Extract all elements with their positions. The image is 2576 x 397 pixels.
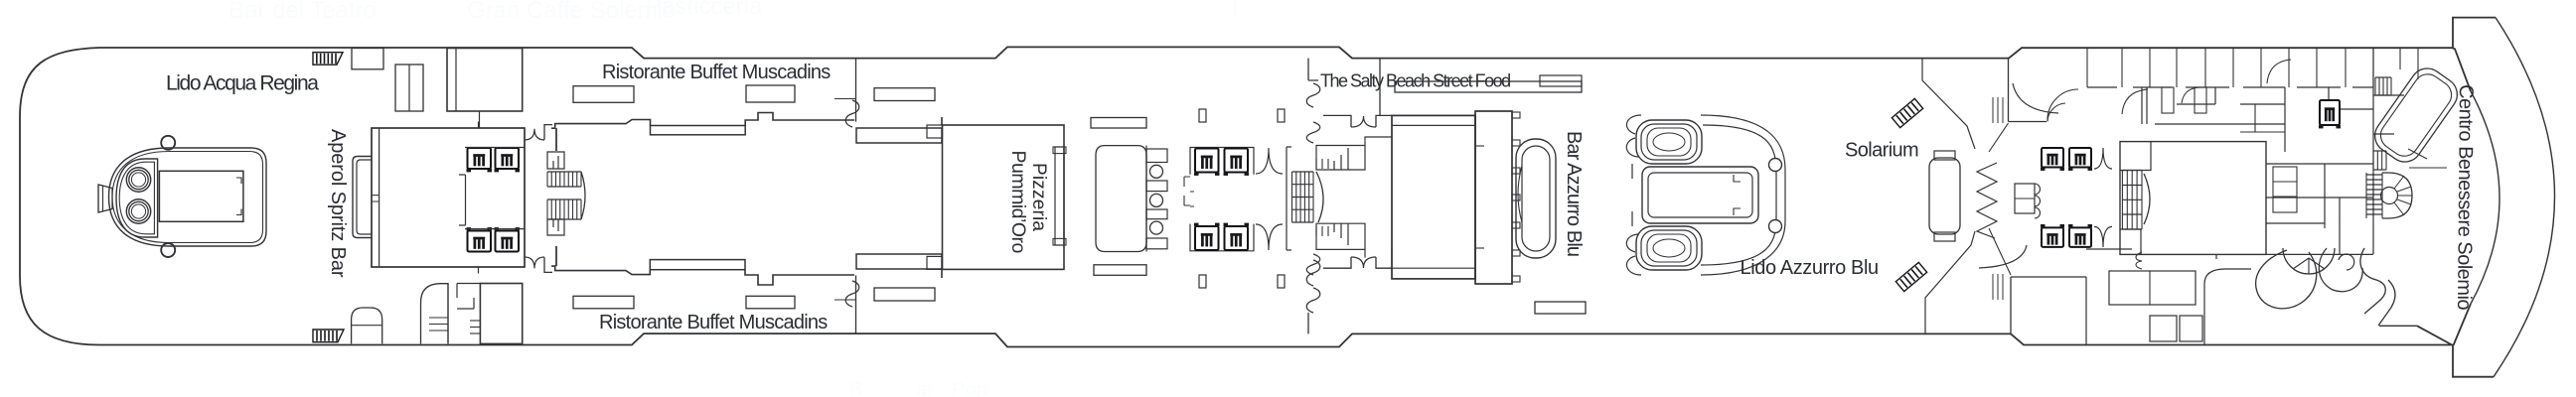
svg-text:Centro Benessere Solemio: Centro Benessere Solemio xyxy=(2453,84,2477,311)
svg-text:Pasticceria: Pasticceria xyxy=(646,0,763,20)
svg-text:Pizzeria: Pizzeria xyxy=(1028,163,1049,231)
svg-text:Ristorante Buffet Muscadins: Ristorante Buffet Muscadins xyxy=(599,312,828,333)
svg-text:Lido Acqua Regina: Lido Acqua Regina xyxy=(166,71,319,94)
svg-text:Pummid’Oro: Pummid’Oro xyxy=(1007,151,1029,254)
svg-text:Bar del Teatro: Bar del Teatro xyxy=(228,0,377,24)
svg-text:rt: rt xyxy=(977,379,989,397)
svg-text:Lido Azzurro Blu: Lido Azzurro Blu xyxy=(1741,257,1879,279)
svg-text:Bar Azzurro Blu: Bar Azzurro Blu xyxy=(1563,131,1585,256)
svg-text:ar: ar xyxy=(916,379,934,397)
svg-text:Aperol Spritz Bar: Aperol Spritz Bar xyxy=(327,129,349,278)
svg-text:Po: Po xyxy=(952,379,976,397)
svg-text:Gran Caffe Solemio: Gran Caffe Solemio xyxy=(467,0,676,24)
svg-text:Ristorante Buffet Muscadins: Ristorante Buffet Muscadins xyxy=(602,62,831,83)
svg-text:B: B xyxy=(849,379,862,397)
svg-text:Solarium: Solarium xyxy=(1845,139,1918,161)
svg-text:I: I xyxy=(1232,0,1239,22)
